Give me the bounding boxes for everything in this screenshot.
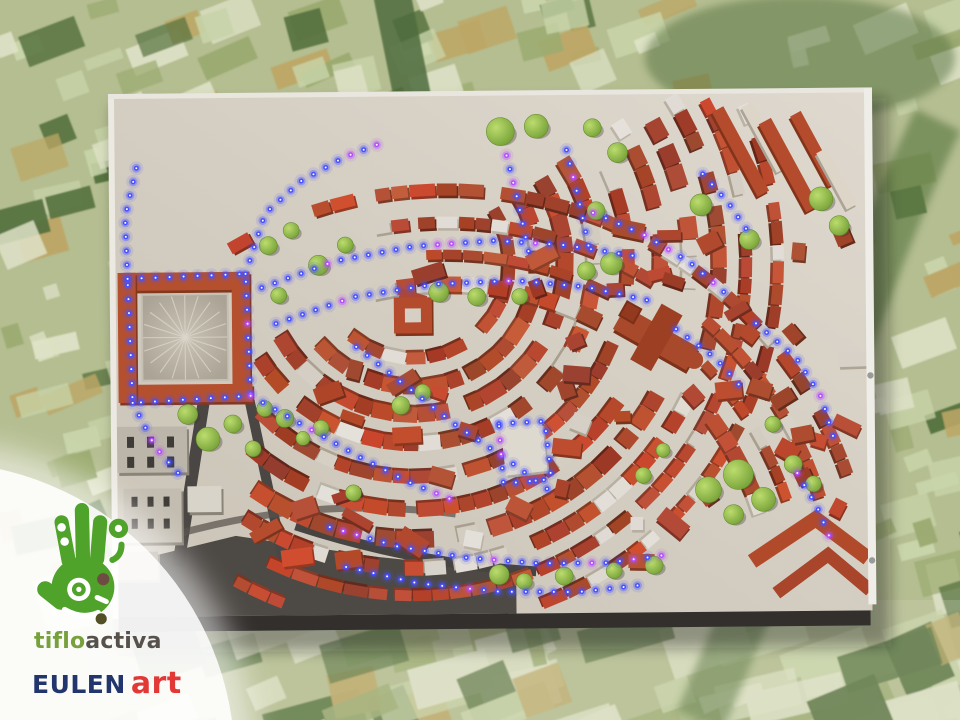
tree: [337, 237, 353, 253]
building: [838, 352, 869, 367]
led-core: [287, 277, 289, 279]
led-core: [619, 560, 621, 562]
led-core: [563, 284, 565, 286]
building: [406, 352, 426, 365]
led-core: [262, 402, 264, 404]
building: [771, 284, 784, 305]
building: [388, 502, 406, 517]
led-core: [550, 472, 552, 474]
led-core: [355, 346, 357, 348]
led-core: [702, 173, 704, 175]
building: [405, 562, 424, 576]
led-core: [501, 467, 503, 469]
led-core: [356, 534, 358, 536]
building: [552, 438, 582, 457]
led-core: [435, 492, 437, 494]
led-core: [354, 256, 356, 258]
led-core: [466, 282, 468, 284]
art-text: art: [131, 666, 182, 701]
led-core: [396, 545, 398, 547]
tree: [512, 288, 528, 304]
led-core: [372, 572, 374, 574]
led-core: [382, 291, 384, 293]
building: [491, 219, 509, 233]
led-core: [539, 591, 541, 593]
building: [463, 250, 483, 261]
led-core: [549, 283, 551, 285]
led-core: [410, 287, 412, 289]
led-core: [432, 406, 434, 408]
led-core: [261, 287, 263, 289]
led-core: [810, 496, 812, 498]
led-core: [812, 383, 814, 385]
building: [413, 590, 432, 601]
led-core: [437, 244, 439, 246]
led-core: [469, 588, 471, 590]
led-core: [279, 199, 281, 201]
led-core: [477, 439, 479, 441]
led-core: [633, 558, 635, 560]
led-core: [819, 395, 821, 397]
led-core: [454, 424, 456, 426]
led-core: [368, 293, 370, 295]
led-core: [424, 550, 426, 552]
led-core: [823, 521, 825, 523]
led-core: [367, 254, 369, 256]
building: [740, 278, 752, 294]
tifloactiva-hand-icon: [36, 500, 140, 630]
led-core: [506, 241, 508, 243]
building: [392, 426, 422, 444]
led-core: [546, 488, 548, 490]
led-core: [410, 389, 412, 391]
led-core: [709, 353, 711, 355]
led-core: [409, 482, 411, 484]
led-core: [729, 205, 731, 207]
led-core: [286, 415, 288, 417]
led-core: [350, 154, 352, 156]
led-core: [395, 249, 397, 251]
led-core: [290, 189, 292, 191]
led-core: [609, 588, 611, 590]
led-core: [335, 443, 337, 445]
led-core: [366, 354, 368, 356]
courtyard: [405, 308, 421, 322]
led-core: [466, 432, 468, 434]
led-core: [340, 259, 342, 261]
led-core: [499, 439, 501, 441]
led-core: [585, 231, 587, 233]
led-core: [545, 430, 547, 432]
tree: [271, 287, 287, 303]
led-core: [274, 408, 276, 410]
led-core: [547, 444, 549, 446]
led-core: [569, 163, 571, 165]
led-core: [376, 144, 378, 146]
led-core: [359, 457, 361, 459]
led-core: [437, 552, 439, 554]
building: [417, 501, 444, 517]
led-core: [377, 363, 379, 365]
activa-text: activa: [85, 629, 161, 654]
building: [475, 218, 490, 231]
led-core: [549, 562, 551, 564]
led-core: [323, 436, 325, 438]
led-core: [450, 243, 452, 245]
led-core: [828, 421, 830, 423]
led-core: [275, 323, 277, 325]
led-core: [576, 246, 578, 248]
led-core: [565, 149, 567, 151]
led-core: [386, 575, 388, 577]
led-core: [274, 282, 276, 284]
led-core: [494, 280, 496, 282]
clip: [867, 372, 873, 378]
led-core: [691, 263, 693, 265]
led-core: [529, 480, 531, 482]
building: [391, 185, 408, 199]
eulenart-wordmark: EULENart: [32, 666, 182, 701]
led-core: [347, 450, 349, 452]
led-core: [399, 380, 401, 382]
building: [443, 250, 462, 260]
led-core: [646, 299, 648, 301]
led-core: [512, 182, 514, 184]
led-core: [738, 383, 740, 385]
building: [773, 245, 784, 260]
led-core: [506, 155, 508, 157]
tiflo-text: tiflo: [34, 629, 85, 654]
led-core: [410, 548, 412, 550]
led-core: [311, 429, 313, 431]
led-core: [631, 255, 633, 257]
led-core: [315, 309, 317, 311]
led-core: [660, 555, 662, 557]
tree: [695, 477, 721, 503]
led-core: [355, 296, 357, 298]
led-core: [728, 373, 730, 375]
led-core: [523, 471, 525, 473]
led-core: [423, 245, 425, 247]
led-core: [269, 208, 271, 210]
led-core: [643, 234, 645, 236]
led-core: [397, 476, 399, 478]
led-core: [325, 166, 327, 168]
led-core: [636, 585, 638, 587]
led-core: [655, 241, 657, 243]
led-core: [797, 359, 799, 361]
led-core: [326, 263, 328, 265]
led-core: [526, 421, 528, 423]
tree: [583, 119, 601, 137]
led-core: [464, 242, 466, 244]
led-core: [372, 463, 374, 465]
led-core: [511, 591, 513, 593]
led-core: [720, 194, 722, 196]
led-core: [618, 252, 620, 254]
led-core: [383, 541, 385, 543]
led-core: [755, 322, 757, 324]
building: [459, 217, 475, 229]
building: [791, 242, 806, 260]
building: [424, 560, 446, 575]
tree: [345, 485, 361, 501]
led-core: [493, 559, 495, 561]
led-core: [623, 586, 625, 588]
led-core: [577, 562, 579, 564]
building: [368, 588, 387, 601]
led-core: [342, 530, 344, 532]
led-core: [803, 484, 805, 486]
tree: [656, 443, 670, 457]
led-core: [483, 589, 485, 591]
led-core: [543, 479, 545, 481]
led-core: [519, 209, 521, 211]
led-core: [489, 447, 491, 449]
led-core: [675, 328, 677, 330]
led-core: [345, 566, 347, 568]
led-core: [512, 422, 514, 424]
led-core: [680, 256, 682, 258]
led-core: [337, 160, 339, 162]
led-core: [534, 242, 536, 244]
led-core: [723, 291, 725, 293]
tree: [392, 396, 410, 414]
led-core: [832, 435, 834, 437]
led-core: [766, 331, 768, 333]
led-core: [563, 562, 565, 564]
led-core: [502, 481, 504, 483]
led-core: [535, 281, 537, 283]
tree: [635, 467, 651, 483]
building: [375, 187, 391, 201]
led-core: [817, 508, 819, 510]
led-core: [591, 562, 593, 564]
led-core: [381, 251, 383, 253]
led-core: [478, 241, 480, 243]
led-core: [300, 180, 302, 182]
led-core: [516, 195, 518, 197]
led-core: [413, 581, 415, 583]
clip: [869, 557, 875, 563]
led-core: [562, 244, 564, 246]
led-core: [576, 190, 578, 192]
led-core: [424, 285, 426, 287]
led-core: [647, 556, 649, 558]
building: [614, 411, 631, 422]
led-core: [509, 168, 511, 170]
led-core: [631, 228, 633, 230]
led-core: [492, 240, 494, 242]
led-core: [804, 371, 806, 373]
led-core: [298, 422, 300, 424]
tree: [577, 262, 595, 280]
led-core: [262, 220, 264, 222]
building: [772, 261, 784, 283]
building: [771, 221, 784, 244]
led-core: [581, 591, 583, 593]
led-core: [465, 557, 467, 559]
led-core: [455, 586, 457, 588]
led-core: [567, 591, 569, 593]
eulen-text: EULEN: [32, 670, 126, 699]
tree: [723, 459, 753, 489]
led-core: [507, 560, 509, 562]
led-core: [587, 245, 589, 247]
led-core: [796, 472, 798, 474]
led-core: [828, 534, 830, 536]
led-core: [535, 562, 537, 564]
led-core: [618, 223, 620, 225]
led-core: [288, 318, 290, 320]
led-core: [479, 558, 481, 560]
led-core: [579, 203, 581, 205]
tree: [607, 143, 627, 163]
led-core: [497, 591, 499, 593]
led-core: [422, 487, 424, 489]
tree: [765, 416, 781, 432]
building: [436, 217, 457, 229]
building: [418, 217, 435, 229]
led-core: [329, 526, 331, 528]
led-core: [577, 285, 579, 287]
led-core: [745, 228, 747, 230]
tree: [751, 487, 775, 511]
building: [741, 257, 752, 277]
led-core: [448, 498, 450, 500]
led-core: [498, 425, 500, 427]
led-core: [667, 248, 669, 250]
led-core: [359, 569, 361, 571]
led-core: [787, 350, 789, 352]
led-core: [527, 250, 529, 252]
led-core: [521, 280, 523, 282]
led-core: [384, 469, 386, 471]
led-core: [595, 589, 597, 591]
tree: [829, 216, 849, 236]
led-core: [604, 250, 606, 252]
led-core: [711, 183, 713, 185]
led-core: [618, 293, 620, 295]
tree: [283, 222, 299, 238]
led-core: [719, 362, 721, 364]
led-core: [396, 289, 398, 291]
led-core: [525, 591, 527, 593]
building: [458, 183, 484, 197]
led-core: [369, 538, 371, 540]
led-core: [698, 345, 700, 347]
led-core: [409, 246, 411, 248]
led-core: [480, 281, 482, 283]
led-core: [522, 223, 524, 225]
led-core: [525, 236, 527, 238]
led-core: [341, 300, 343, 302]
building: [391, 218, 410, 231]
led-core: [572, 176, 574, 178]
led-core: [548, 243, 550, 245]
building: [631, 517, 644, 530]
led-core: [508, 280, 510, 282]
tree: [809, 187, 833, 211]
tree: [524, 114, 548, 138]
tifloactiva-wordmark: tifloactiva: [34, 629, 162, 654]
led-core: [328, 304, 330, 306]
led-core: [400, 578, 402, 580]
logo-group: tifloactiva EULENart: [0, 0, 260, 720]
led-core: [605, 217, 607, 219]
led-core: [438, 283, 440, 285]
led-core: [388, 372, 390, 374]
led-core: [427, 583, 429, 585]
led-core: [512, 463, 514, 465]
led-core: [548, 458, 550, 460]
building: [463, 530, 483, 549]
tree: [724, 505, 744, 525]
led-core: [421, 398, 423, 400]
led-core: [521, 561, 523, 563]
tree: [690, 194, 712, 216]
tree: [486, 117, 514, 145]
led-core: [441, 585, 443, 587]
led-core: [776, 341, 778, 343]
led-core: [632, 296, 634, 298]
led-core: [582, 217, 584, 219]
led-core: [312, 173, 314, 175]
led-core: [313, 268, 315, 270]
led-core: [686, 336, 688, 338]
led-core: [443, 415, 445, 417]
building: [409, 183, 435, 197]
led-core: [363, 149, 365, 151]
led-core: [452, 282, 454, 284]
led-core: [712, 282, 714, 284]
photo-collage: tifloactiva EULENart: [0, 0, 960, 720]
led-core: [515, 481, 517, 483]
led-core: [605, 290, 607, 292]
building: [562, 365, 590, 383]
led-core: [301, 313, 303, 315]
led-core: [300, 272, 302, 274]
led-core: [737, 216, 739, 218]
building: [437, 183, 457, 195]
led-core: [553, 591, 555, 593]
led-core: [540, 420, 542, 422]
led-core: [500, 453, 502, 455]
tree: [468, 288, 486, 306]
led-core: [824, 408, 826, 410]
led-core: [702, 272, 704, 274]
building: [395, 590, 412, 601]
led-core: [591, 287, 593, 289]
led-core: [605, 562, 607, 564]
led-core: [451, 554, 453, 556]
led-core: [592, 212, 594, 214]
